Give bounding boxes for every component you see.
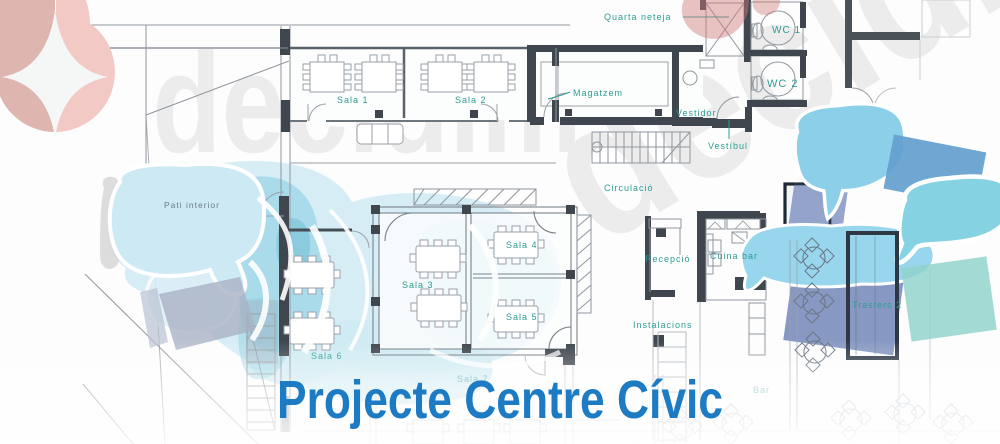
svg-text:Sala 1: Sala 1 bbox=[337, 95, 369, 105]
svg-text:Pati interior: Pati interior bbox=[164, 200, 220, 210]
svg-text:Sala 5: Sala 5 bbox=[506, 312, 538, 322]
svg-text:Quarta neteja: Quarta neteja bbox=[604, 12, 672, 22]
svg-text:Trasters 2: Trasters 2 bbox=[852, 300, 902, 310]
svg-text:Cuina bar: Cuina bar bbox=[710, 251, 758, 261]
svg-text:WC 2: WC 2 bbox=[767, 78, 799, 90]
svg-text:Sala 4: Sala 4 bbox=[506, 240, 538, 250]
svg-text:Magatzem: Magatzem bbox=[573, 88, 623, 98]
svg-text:Vestíbul: Vestíbul bbox=[708, 141, 748, 151]
svg-text:Sala 2: Sala 2 bbox=[455, 95, 487, 105]
svg-text:Vestidor: Vestidor bbox=[676, 108, 717, 118]
svg-text:Sala 3: Sala 3 bbox=[402, 280, 434, 290]
svg-text:Circulació: Circulació bbox=[604, 183, 654, 193]
svg-text:WC 1: WC 1 bbox=[772, 25, 801, 36]
svg-text:Instalacions: Instalacions bbox=[633, 320, 693, 330]
svg-text:Recepció: Recepció bbox=[645, 254, 691, 264]
svg-text:Projecte Centre Cívic: Projecte Centre Cívic bbox=[277, 370, 723, 430]
